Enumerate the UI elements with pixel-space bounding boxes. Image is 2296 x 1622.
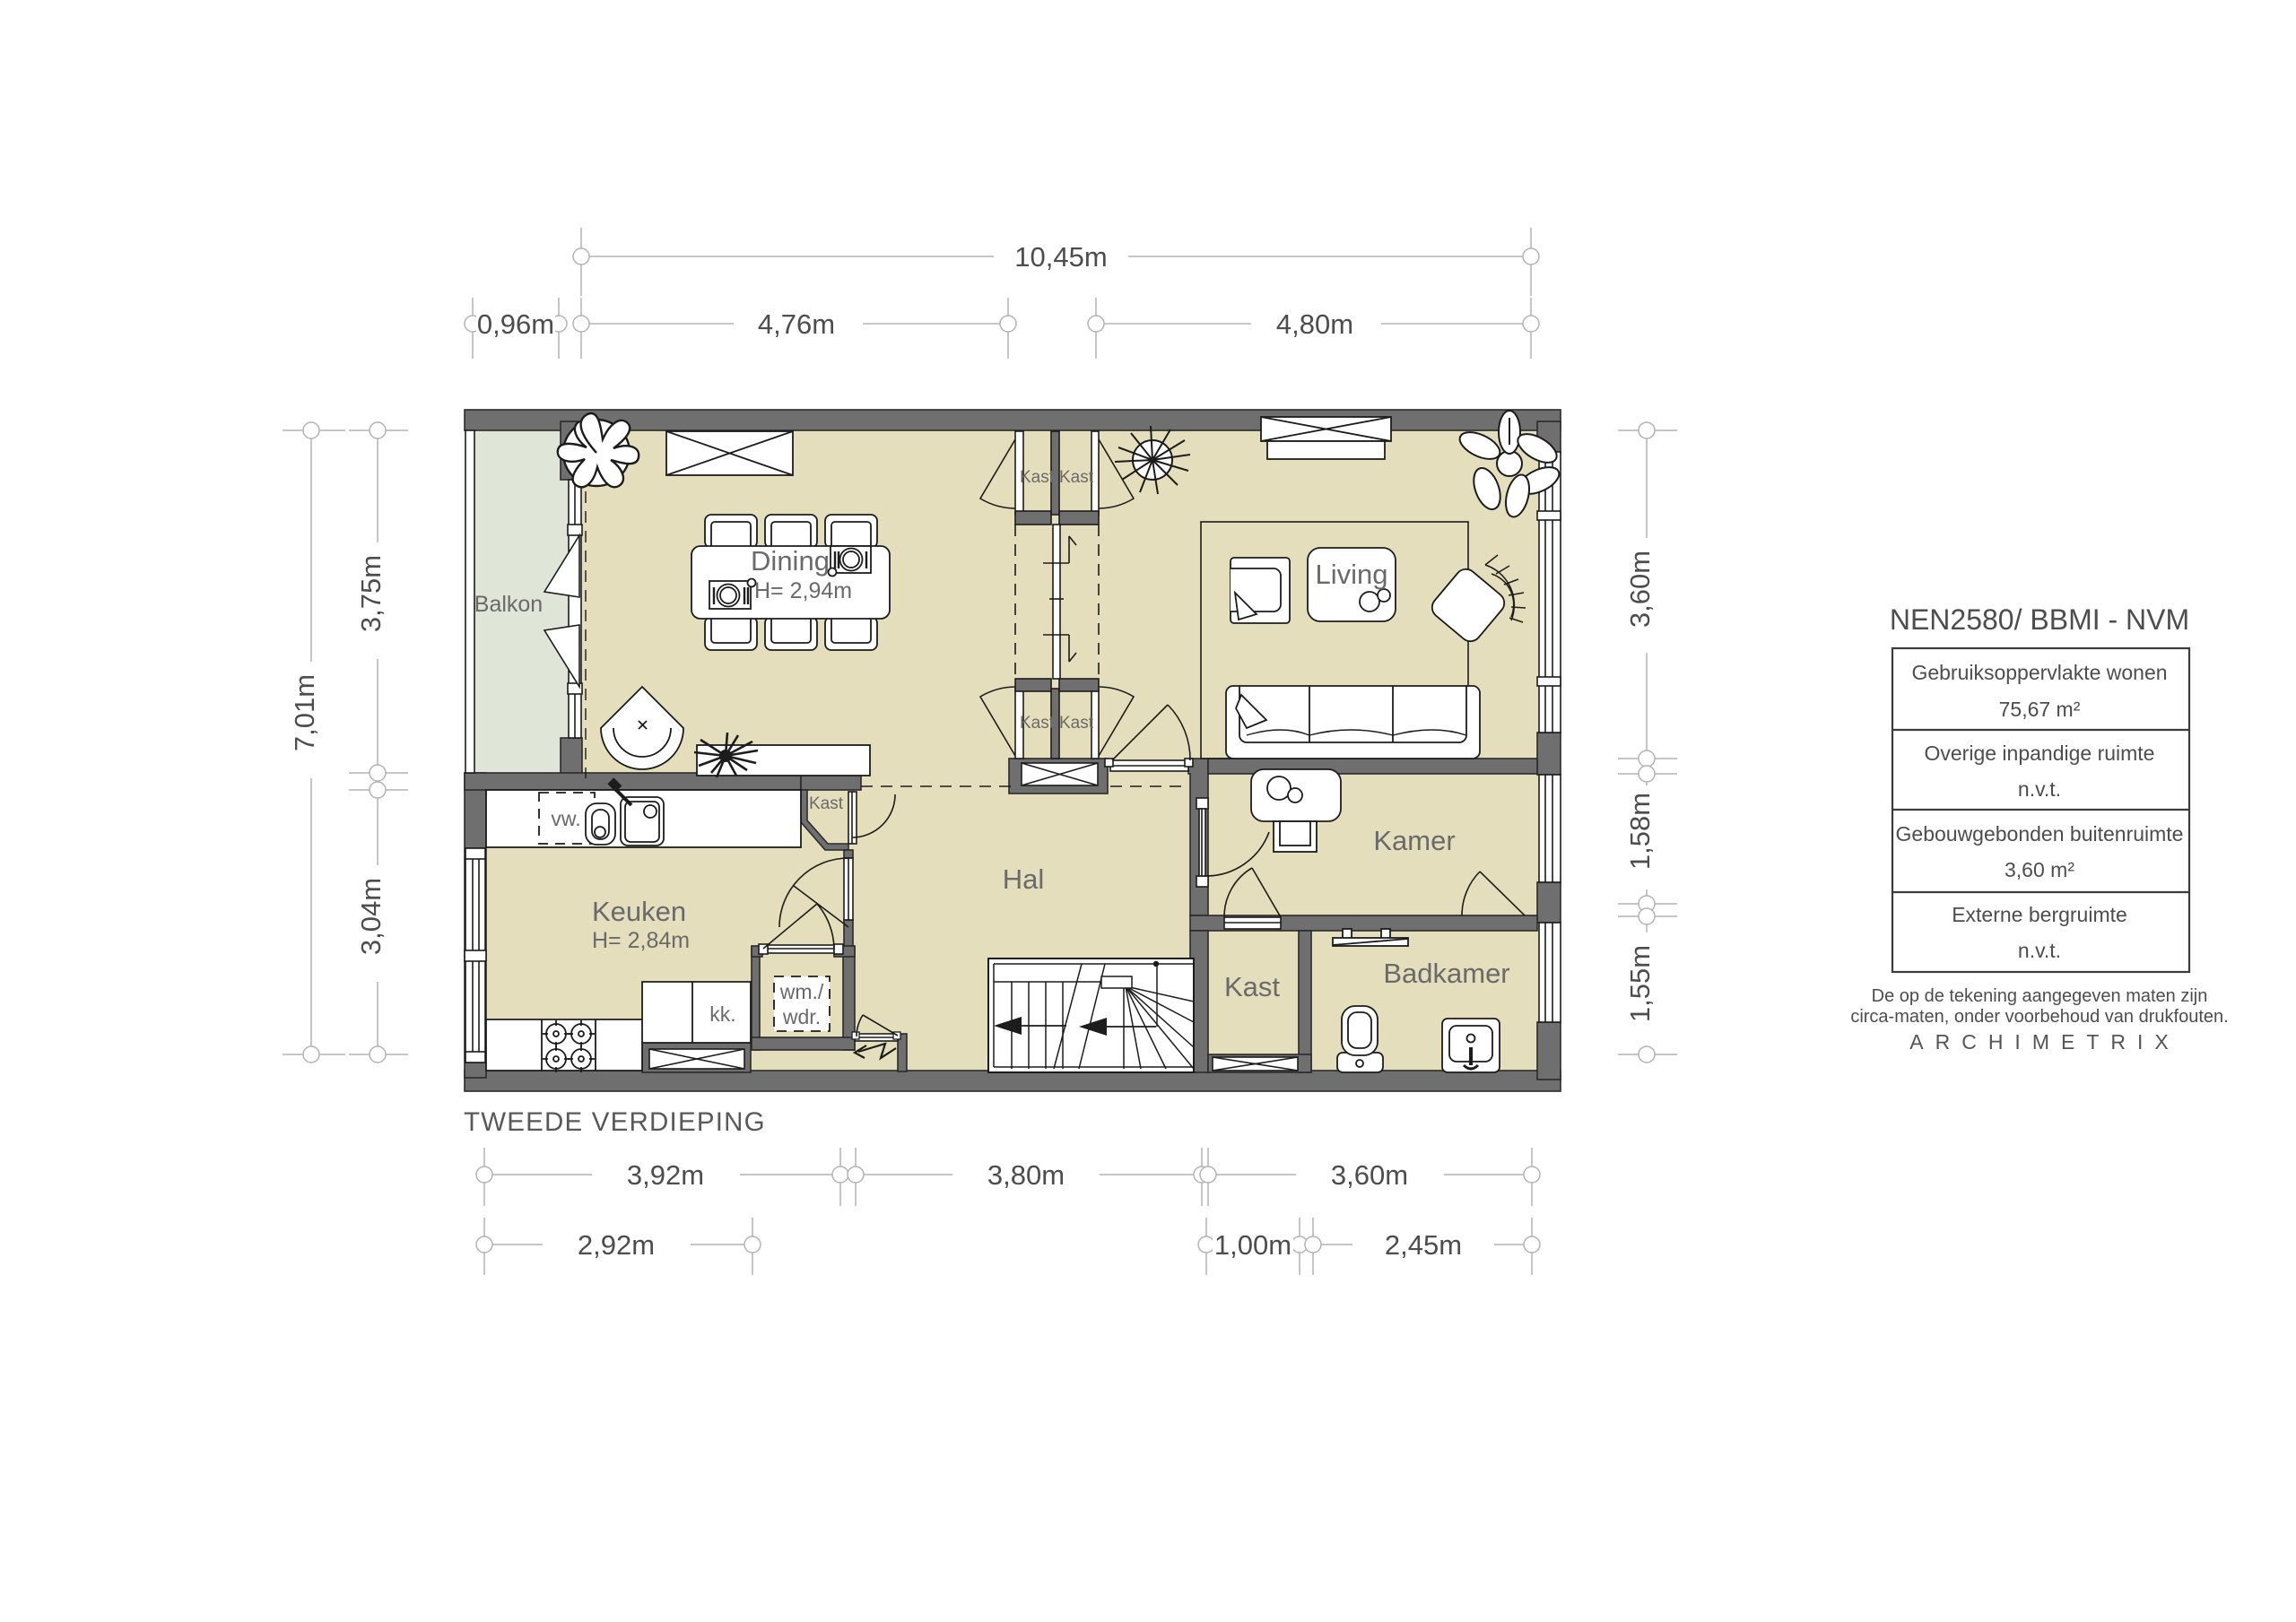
svg-text:NEN2580/ BBMI - NVM: NEN2580/ BBMI - NVM (1890, 603, 2189, 636)
svg-text:Dining: Dining (751, 545, 830, 577)
svg-text:1,00m: 1,00m (1214, 1229, 1291, 1261)
svg-text:ARCHIMETRIX: ARCHIMETRIX (1909, 1030, 2179, 1054)
svg-text:Badkamer: Badkamer (1383, 958, 1509, 989)
svg-text:2,45m: 2,45m (1385, 1229, 1462, 1261)
svg-text:Living: Living (1316, 559, 1388, 590)
svg-text:Kast: Kast (1224, 971, 1280, 1002)
svg-text:Kast: Kast (1020, 714, 1055, 733)
svg-text:Balkon: Balkon (474, 592, 543, 617)
svg-text:kk.: kk. (709, 1002, 735, 1026)
svg-text:Kast: Kast (1059, 468, 1094, 487)
svg-text:Keuken: Keuken (592, 896, 686, 927)
svg-text:10,45m: 10,45m (1014, 241, 1107, 273)
svg-text:3,80m: 3,80m (987, 1159, 1065, 1191)
svg-text:circa-maten, onder voorbehoud: circa-maten, onder voorbehoud van drukfo… (1850, 1007, 2228, 1027)
svg-text:Gebruiksoppervlakte wonen: Gebruiksoppervlakte wonen (1911, 661, 2167, 684)
svg-text:3,92m: 3,92m (627, 1159, 704, 1191)
svg-text:2,92m: 2,92m (578, 1229, 655, 1261)
svg-text:Kast: Kast (809, 794, 844, 813)
svg-text:Hal: Hal (1003, 863, 1045, 895)
svg-text:n.v.t.: n.v.t. (2018, 939, 2061, 962)
svg-text:Kast: Kast (1020, 468, 1055, 487)
svg-text:3,60m: 3,60m (1624, 551, 1656, 628)
svg-text:De op de tekening aangegeven m: De op de tekening aangegeven maten zijn (1872, 986, 2208, 1006)
svg-text:wm./: wm./ (779, 980, 824, 1003)
svg-text:Kamer: Kamer (1373, 825, 1455, 856)
svg-text:4,80m: 4,80m (1276, 308, 1353, 340)
svg-text:3,75m: 3,75m (355, 555, 387, 632)
svg-text:Overige inpandige ruimte: Overige inpandige ruimte (1925, 742, 2155, 765)
svg-text:wdr.: wdr. (782, 1005, 821, 1028)
svg-text:Externe bergruimte: Externe bergruimte (1952, 903, 2127, 926)
svg-text:4,76m: 4,76m (758, 308, 835, 340)
svg-text:1,58m: 1,58m (1624, 793, 1656, 870)
svg-text:75,67 m²: 75,67 m² (1999, 698, 2081, 721)
svg-text:Gebouwgebonden buitenruimte: Gebouwgebonden buitenruimte (1896, 822, 2184, 846)
svg-text:3,04m: 3,04m (355, 878, 387, 955)
svg-text:H= 2,94m: H= 2,94m (754, 578, 852, 603)
svg-text:Kast: Kast (1059, 714, 1094, 733)
svg-text:3,60m: 3,60m (1331, 1159, 1408, 1191)
svg-text:H= 2,84m: H= 2,84m (592, 928, 690, 953)
svg-text:0,96m: 0,96m (477, 308, 554, 340)
svg-text:7,01m: 7,01m (289, 674, 320, 751)
svg-text:vw.: vw. (551, 807, 580, 830)
svg-text:TWEEDE VERDIEPING: TWEEDE VERDIEPING (464, 1107, 766, 1137)
svg-text:1,55m: 1,55m (1624, 945, 1656, 1022)
svg-text:n.v.t.: n.v.t. (2018, 777, 2061, 801)
svg-text:3,60 m²: 3,60 m² (2005, 858, 2074, 881)
